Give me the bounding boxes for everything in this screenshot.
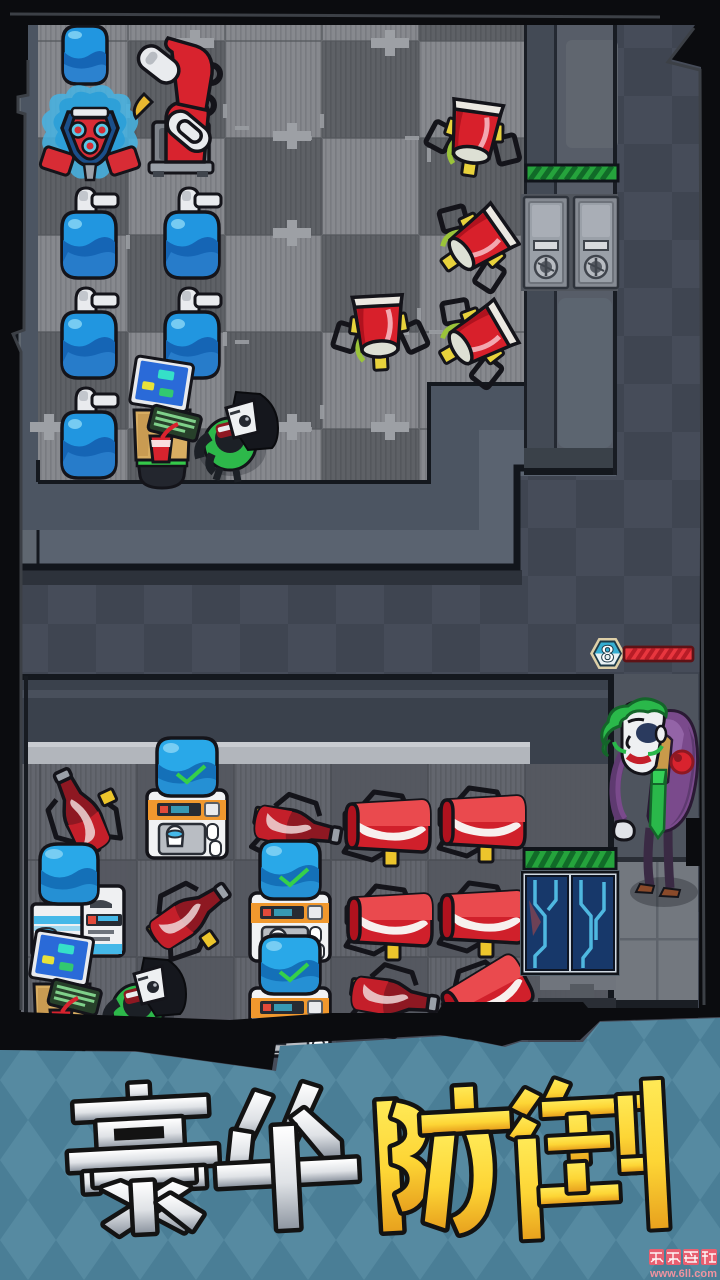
svg-text:www.6ll.com: www.6ll.com	[649, 1268, 717, 1280]
